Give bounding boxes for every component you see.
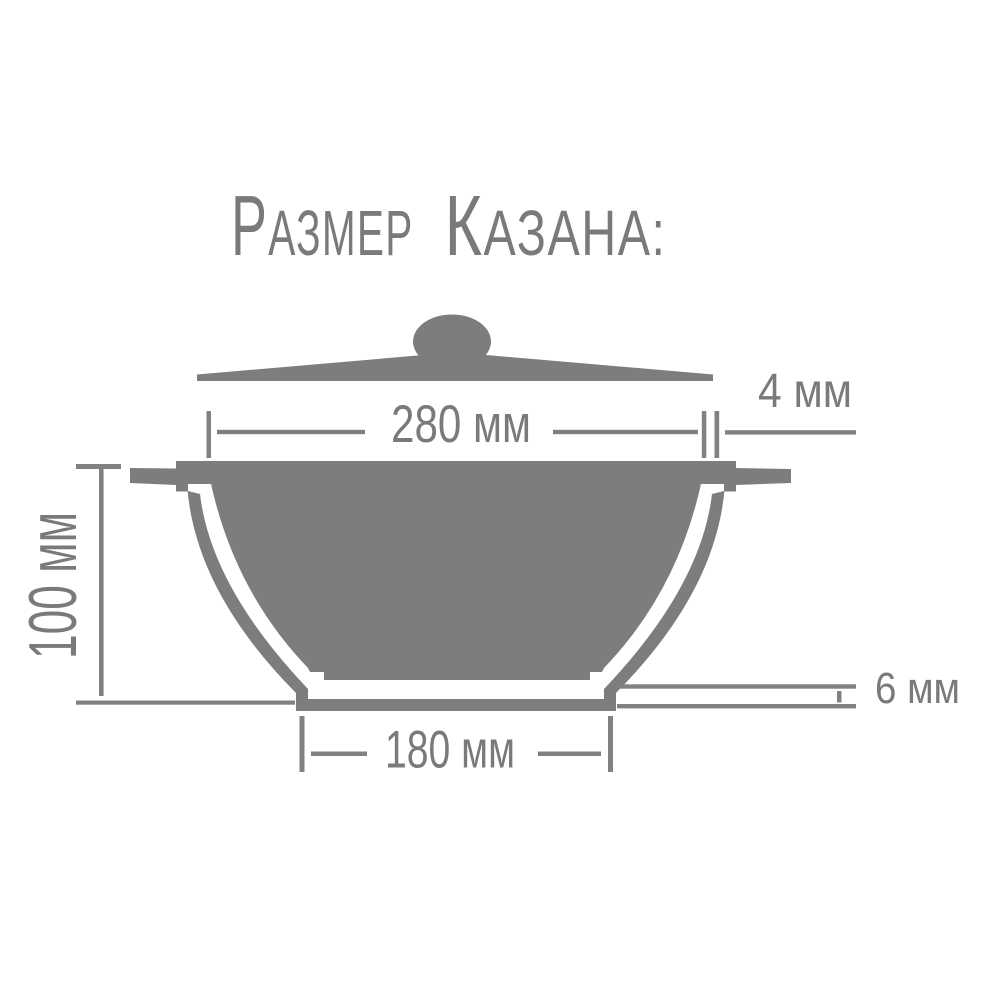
svg-text:100 мм: 100 мм xyxy=(16,512,91,659)
svg-text:КАЗАНА:: КАЗАНА: xyxy=(445,178,667,273)
svg-text:280 мм: 280 мм xyxy=(391,395,531,454)
svg-text:РАЗМЕР: РАЗМЕР xyxy=(231,180,414,274)
svg-text:6 мм: 6 мм xyxy=(875,664,960,713)
svg-text:180 мм: 180 мм xyxy=(385,720,515,779)
svg-text:4 мм: 4 мм xyxy=(758,365,852,418)
